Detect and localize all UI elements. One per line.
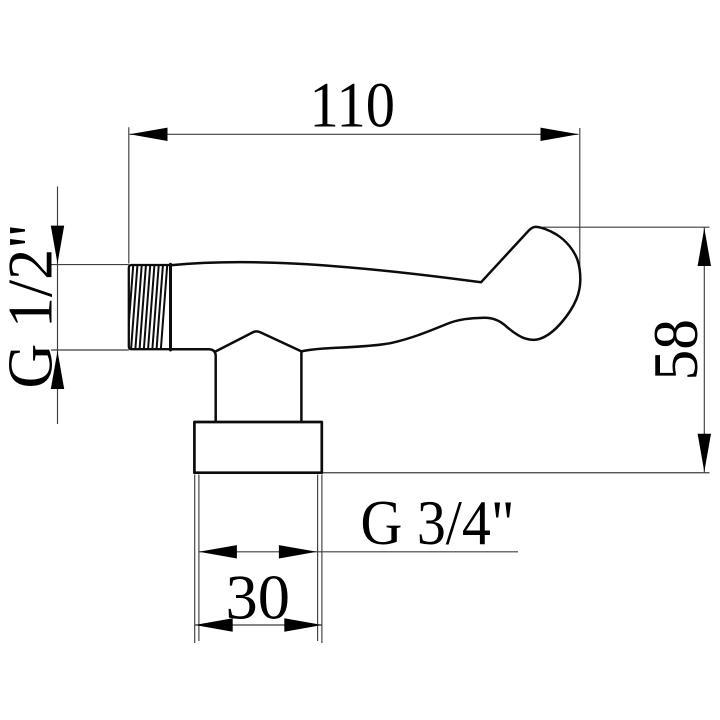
svg-text:110: 110 bbox=[310, 69, 396, 140]
svg-text:G 3/4": G 3/4" bbox=[361, 488, 515, 558]
svg-text:30: 30 bbox=[226, 563, 291, 633]
svg-text:G 1/2": G 1/2" bbox=[0, 224, 66, 389]
svg-text:58: 58 bbox=[641, 319, 711, 381]
